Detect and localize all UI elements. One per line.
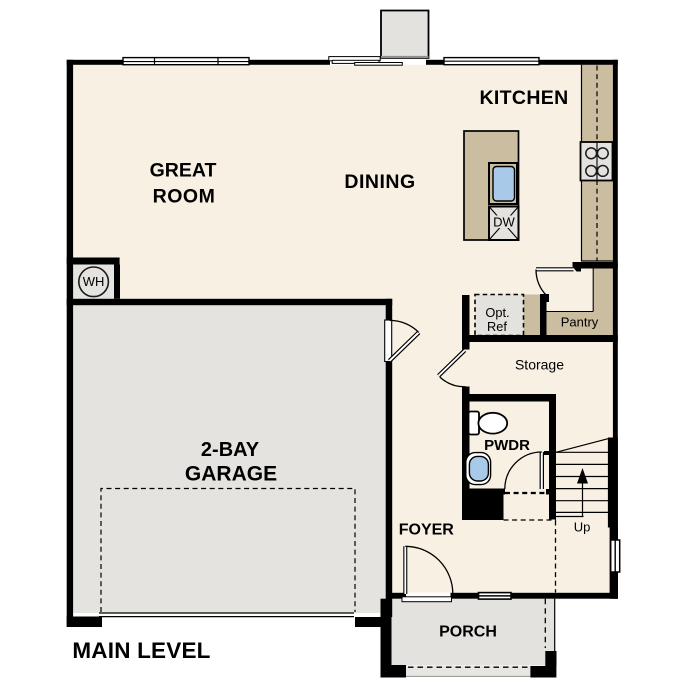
svg-text:DINING: DINING <box>344 171 415 193</box>
svg-text:PWDR: PWDR <box>484 437 530 454</box>
svg-text:Opt.: Opt. <box>485 305 509 320</box>
svg-text:KITCHEN: KITCHEN <box>479 87 568 109</box>
svg-text:GARAGE: GARAGE <box>185 463 277 486</box>
svg-text:Storage: Storage <box>515 357 564 373</box>
svg-text:MAIN LEVEL: MAIN LEVEL <box>72 638 210 663</box>
svg-text:2-BAY: 2-BAY <box>201 439 260 461</box>
svg-text:PORCH: PORCH <box>439 624 497 641</box>
svg-text:Pantry: Pantry <box>561 315 599 330</box>
svg-text:WH: WH <box>83 274 105 289</box>
svg-text:FOYER: FOYER <box>399 522 455 539</box>
svg-text:DW: DW <box>493 214 515 229</box>
svg-text:ROOM: ROOM <box>153 185 216 207</box>
svg-text:GREAT: GREAT <box>150 160 217 182</box>
svg-text:Up: Up <box>574 520 591 535</box>
svg-text:Ref: Ref <box>487 319 507 334</box>
